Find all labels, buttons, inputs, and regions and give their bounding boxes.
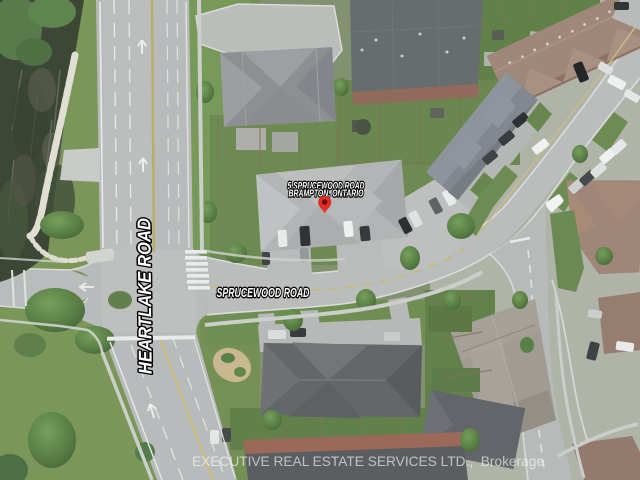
- svg-text:SPRUCEWOOD ROAD: SPRUCEWOOD ROAD: [217, 285, 310, 300]
- svg-text:EXECUTIVE REAL ESTATE SERVICES: EXECUTIVE REAL ESTATE SERVICES LTD., Bro…: [192, 453, 544, 469]
- svg-text:HEARTLAKE ROAD: HEARTLAKE ROAD: [133, 218, 155, 374]
